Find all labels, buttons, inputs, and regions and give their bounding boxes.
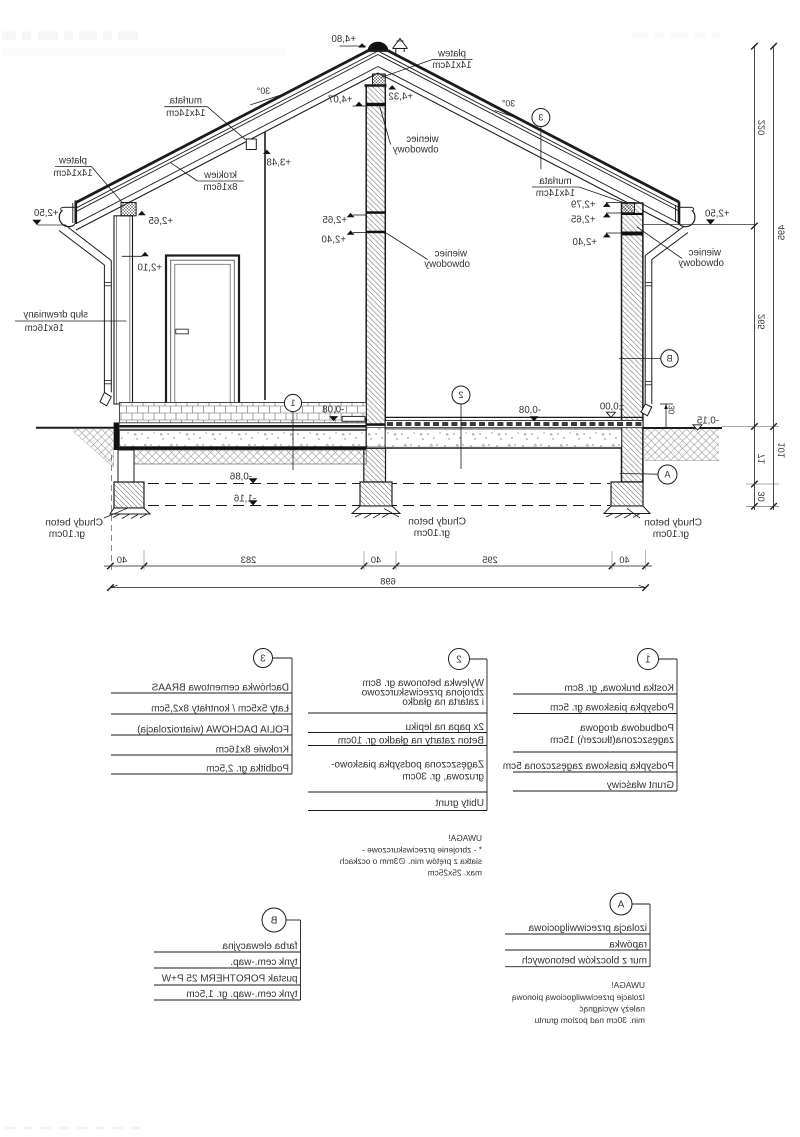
svg-text:495: 495 [777,225,787,241]
svg-text:+2,40: +2,40 [572,237,597,248]
svg-text:Grunt właściwy: Grunt właściwy [607,780,674,791]
svg-text:+2,10: +2,10 [137,263,162,274]
svg-text:220: 220 [757,120,767,136]
svg-text:Beton zatarty na gładko gr. 10: Beton zatarty na gładko gr. 10cm [338,736,484,747]
svg-text:8x16cm: 8x16cm [204,182,238,193]
svg-text:14x14cm: 14x14cm [166,108,205,119]
svg-text:należy wyciągnąć: należy wyciągnąć [579,1004,645,1014]
svg-text:2x papa na lepiku: 2x papa na lepiku [406,722,484,733]
svg-text:30: 30 [757,491,767,501]
svg-text:+2,50: +2,50 [704,209,729,220]
svg-text:2: 2 [456,654,462,665]
svg-text:14x14cm: 14x14cm [53,168,92,179]
svg-text:UWAGA!: UWAGA! [448,833,482,843]
svg-text:siatka z prętów min. ∅3mm o oc: siatka z prętów min. ∅3mm o oczkach [339,856,482,866]
svg-text:-1,16: -1,16 [234,494,256,505]
svg-text:14x14cm: 14x14cm [536,188,575,199]
svg-text:zagęszczona(tłuczeń) 15cm: zagęszczona(tłuczeń) 15cm [550,735,674,746]
svg-text:UWAGA!: UWAGA! [611,980,645,990]
svg-text:Chudy beton: Chudy beton [45,518,103,529]
svg-text:B: B [666,354,672,364]
svg-text:698: 698 [380,577,396,587]
svg-text:mur z bloczków betonowych: mur z bloczków betonowych [522,956,647,967]
svg-text:gr.10cm: gr.10cm [49,529,85,540]
svg-text:A: A [617,899,624,910]
svg-text:-0,15: -0,15 [697,416,719,427]
svg-text:Kostka brukowa, gr. 8cm: Kostka brukowa, gr. 8cm [565,683,675,694]
svg-text:rapówka: rapówka [609,940,647,951]
svg-text:+2,40: +2,40 [321,235,346,246]
svg-text:40: 40 [117,555,127,565]
svg-text:+2,79: +2,79 [571,200,596,211]
svg-text:* - zbrojenie przeciwskurczowe: * - zbrojenie przeciwskurczowe - [362,845,482,855]
svg-text:Podsypka piaskowa gr. 5cm: Podsypka piaskowa gr. 5cm [550,703,674,714]
svg-text:+4,80: +4,80 [331,34,356,45]
svg-text:30°: 30° [502,99,515,109]
svg-text:min. 30cm nad poziom gruntu: min. 30cm nad poziom gruntu [534,1015,645,1025]
svg-text:14x14cm: 14x14cm [432,60,471,71]
svg-text:izolacja przeciwwilgociowa: izolacja przeciwwilgociowa [528,923,647,934]
svg-text:słup drewniany: słup drewniany [23,310,88,321]
svg-text:B: B [270,915,277,926]
svg-text:Podsypka piaskowa zagęszczona: Podsypka piaskowa zagęszczona 5cm [503,761,674,772]
svg-text:Izolacje przeciwwilgociową pio: Izolacje przeciwwilgociową pionową [512,992,645,1002]
svg-text:-0,08: -0,08 [519,405,541,416]
svg-text:-0,86: -0,86 [230,472,252,483]
svg-text:płatew: płatew [58,156,87,167]
svg-text:±0,00: ±0,00 [599,402,624,413]
svg-text:Zagęszczona podsypka piaskowo-: Zagęszczona podsypka piaskowo- [331,760,484,771]
svg-text:pustak POROTHERM 25 P+W: pustak POROTHERM 25 P+W [161,974,297,985]
svg-text:wieniec: wieniec [406,134,439,145]
svg-text:tynk cem.-wap. gr. 1,5cm: tynk cem.-wap. gr. 1,5cm [186,989,297,1000]
svg-text:+3,48: +3,48 [267,158,292,169]
svg-text:wieniec: wieniec [435,249,468,260]
svg-text:murłata: murłata [539,176,572,187]
svg-text:+4,07: +4,07 [328,95,353,106]
svg-text:Dachówka cementowa BRAAS: Dachówka cementowa BRAAS [151,683,289,694]
svg-text:71: 71 [757,454,767,464]
svg-text:max. 25x25cm: max. 25x25cm [428,868,482,878]
svg-text:101: 101 [777,442,787,458]
svg-text:40: 40 [619,555,629,565]
svg-text:obwodowy: obwodowy [424,259,470,270]
svg-text:3: 3 [260,653,266,664]
svg-text:1: 1 [645,654,651,665]
svg-text:gruzowa, gr. 30cm: gruzowa, gr. 30cm [402,772,484,783]
svg-text:30°: 30° [257,86,270,96]
svg-text:+2,65: +2,65 [571,215,596,226]
svg-text:2: 2 [458,390,463,400]
svg-text:+2,65: +2,65 [322,215,347,226]
svg-text:40: 40 [371,555,381,565]
svg-text:+2,50: +2,50 [33,208,58,219]
svg-text:265: 265 [757,314,767,330]
svg-text:i zatarta na gładko: i zatarta na gładko [402,697,484,708]
svg-text:Chudy beton: Chudy beton [644,518,702,529]
svg-text:Łaty 5x5cm / kontrłaty 8x2,5cm: Łaty 5x5cm / kontrłaty 8x2,5cm [151,704,289,715]
svg-text:295: 295 [482,555,498,565]
svg-text:1: 1 [290,398,295,408]
svg-text:obwodowy: obwodowy [393,145,439,156]
svg-text:+4,32: +4,32 [389,92,414,103]
svg-text:Ubity grunt: Ubity grunt [435,798,484,809]
svg-text:-0,08: -0,08 [322,404,344,415]
svg-text:16x16cm: 16x16cm [25,323,64,334]
svg-text:Podbitka gr. 2,5cm: Podbitka gr. 2,5cm [206,764,289,775]
svg-text:283: 283 [241,555,257,565]
svg-text:krokiew: krokiew [203,170,237,181]
svg-text:gr.10cm: gr.10cm [414,528,450,539]
svg-text:tynk cem.-wap.: tynk cem.-wap. [230,957,297,968]
svg-text:wieniec: wieniec [689,248,722,259]
svg-text:3: 3 [538,113,543,123]
svg-text:FOLIA DACHOWA (wiatroizolacja): FOLIA DACHOWA (wiatroizolacja) [137,725,289,736]
svg-text:obwodowy: obwodowy [678,258,724,269]
svg-text:murłata: murłata [169,96,202,107]
svg-text:płatew: płatew [437,49,466,60]
svg-text:A: A [664,470,670,480]
svg-text:farba elewacyjna: farba elewacyjna [222,941,297,952]
svg-text:Krokwie 8x16cm: Krokwie 8x16cm [216,745,289,756]
svg-text:+2,65: +2,65 [149,216,174,227]
svg-text:Chudy beton: Chudy beton [408,517,466,528]
svg-text:gr.10cm: gr.10cm [653,529,689,540]
svg-text:Podbudowa drogowa: Podbudowa drogowa [580,723,674,734]
svg-text:30: 30 [668,405,677,415]
